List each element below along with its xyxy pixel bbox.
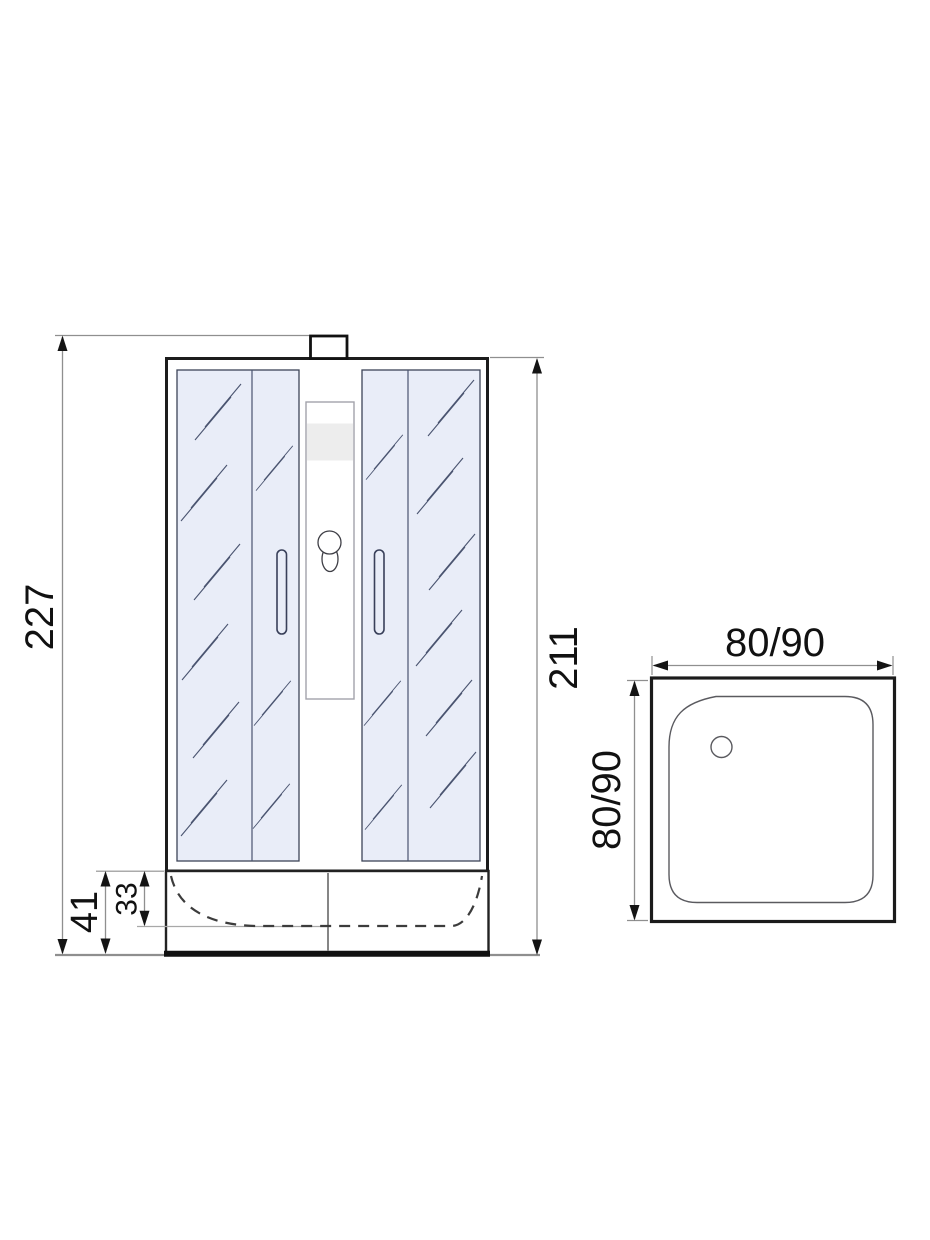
door-handle-right xyxy=(375,550,385,634)
technical-drawing-canvas: 227 211 41 33 xyxy=(0,0,930,1240)
dim-label-tray-depth: 80/90 xyxy=(585,750,629,850)
central-column xyxy=(306,402,354,699)
column-shelf-band xyxy=(307,424,353,461)
dim-label-tray-height: 41 xyxy=(64,891,106,933)
tray-front xyxy=(137,871,490,954)
dim-label-tray-width: 80/90 xyxy=(725,621,825,665)
front-view: 227 211 41 33 xyxy=(18,336,586,956)
tray-outline xyxy=(166,871,489,954)
roof-connector-box xyxy=(311,336,348,359)
top-view: 80/90 80/90 xyxy=(585,621,895,922)
dim-tray-width: 80/90 xyxy=(652,621,893,675)
dim-cabin-height: 211 xyxy=(532,358,586,955)
dim-total-height: 227 xyxy=(18,336,68,955)
door-handle-left xyxy=(277,550,287,634)
dim-tray-height: 41 xyxy=(64,871,111,954)
dim-label-cabin-height: 211 xyxy=(542,626,586,690)
dim-label-tray-inner-depth: 33 xyxy=(111,882,144,915)
dim-label-total-height: 227 xyxy=(18,584,62,651)
dim-tray-depth: 80/90 xyxy=(585,681,648,921)
tray-inner-basin xyxy=(669,697,873,903)
shower-head-knob xyxy=(318,531,341,554)
shower-cabin-drawing: 227 211 41 33 xyxy=(0,0,930,1240)
drain-hole xyxy=(711,737,732,758)
dim-tray-inner-depth: 33 xyxy=(111,871,150,926)
